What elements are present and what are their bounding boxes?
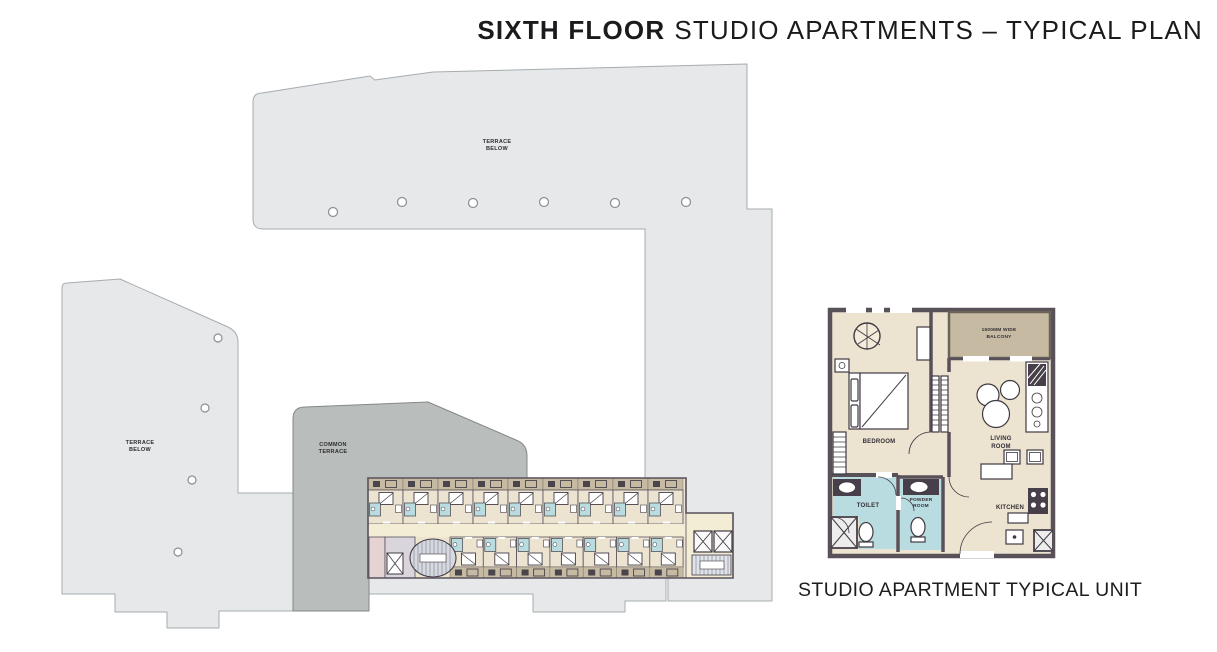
terrace-below-top-line1: TERRACE	[483, 139, 512, 145]
strip-unit-bottom-5	[583, 537, 616, 578]
terrace-below-left-line2: BELOW	[129, 447, 151, 453]
strip-unit-top-1	[368, 478, 403, 524]
strip-unit-bottom-4	[550, 537, 583, 578]
strip-unit-bottom-7	[650, 537, 683, 578]
strip-unit-top-3	[438, 478, 473, 524]
balcony-label-line1: 1500MM WIDE	[982, 327, 1017, 333]
apartment-strip	[368, 478, 733, 578]
floor-plan: TERRACE BELOW TERRACE BELOW COMMON TERRA…	[62, 64, 772, 628]
terrace-below-top-line2: BELOW	[486, 146, 508, 152]
strip-unit-top-7	[578, 478, 613, 524]
toilet-label: TOILET	[857, 503, 880, 509]
common-terrace-line2: TERRACE	[319, 449, 348, 455]
living-room-label-line1: LIVING	[990, 436, 1011, 442]
page: SIXTH FLOORSTUDIO APARTMENTS – TYPICAL P…	[0, 0, 1217, 652]
kitchen-counter	[1026, 362, 1048, 432]
strip-unit-bottom-3	[517, 537, 550, 578]
right-core	[686, 513, 733, 578]
strip-unit-top-9	[648, 478, 683, 524]
left-core	[369, 537, 456, 578]
powder-room-label-line1: POWDER	[910, 497, 933, 503]
living-room-label-line2: ROOM	[991, 444, 1010, 450]
powder-room-label-line2: ROOM	[913, 503, 929, 509]
unit-caption: STUDIO APARTMENT TYPICAL UNIT	[798, 579, 1142, 602]
common-terrace-line1: COMMON	[319, 442, 346, 448]
bedroom-label: BEDROOM	[863, 439, 896, 445]
strip-unit-bottom-6	[617, 537, 650, 578]
strip-unit-top-4	[473, 478, 508, 524]
terrace-left-shape	[62, 279, 293, 628]
corridor	[369, 524, 686, 537]
terrace-below-left-line1: TERRACE	[126, 440, 155, 446]
balcony-label-line2: BALCONY	[986, 334, 1012, 340]
floor-plan-canvas: TERRACE BELOW TERRACE BELOW COMMON TERRA…	[0, 0, 1217, 652]
strip-unit-top-8	[613, 478, 648, 524]
strip-top-units	[368, 478, 683, 524]
strip-unit-top-6	[543, 478, 578, 524]
strip-unit-top-2	[403, 478, 438, 524]
studio-unit-plan: 1500MM WIDE BALCONY BEDROOM LIVING ROOM …	[830, 307, 1053, 558]
strip-unit-bottom-2	[483, 537, 516, 578]
kitchen-label: KITCHEN	[996, 505, 1024, 511]
strip-bottom-units	[450, 537, 683, 578]
strip-unit-top-5	[508, 478, 543, 524]
